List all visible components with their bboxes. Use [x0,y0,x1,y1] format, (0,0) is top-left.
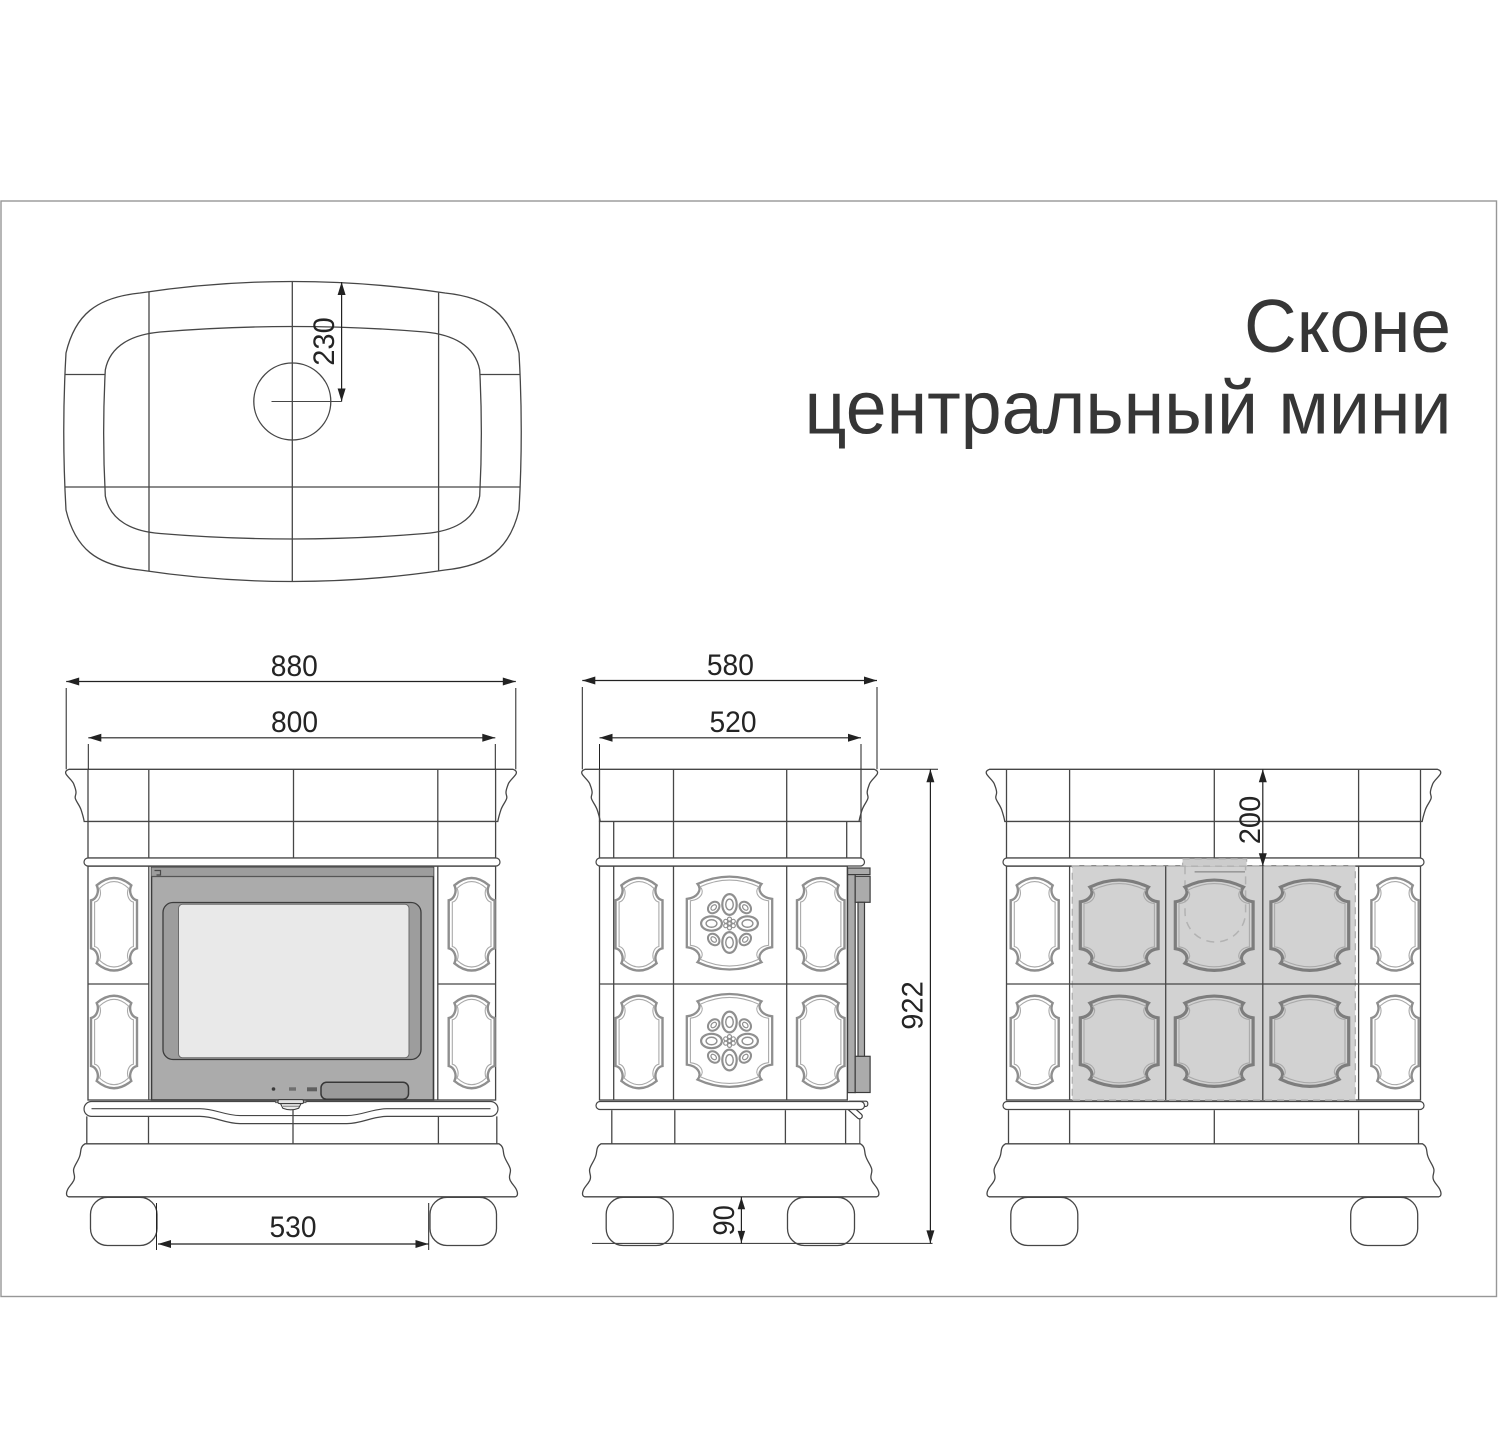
svg-text:880: 880 [271,650,318,683]
svg-text:230: 230 [308,317,341,366]
svg-text:800: 800 [271,706,318,739]
svg-text:90: 90 [708,1205,741,1236]
svg-text:580: 580 [707,649,754,682]
svg-text:530: 530 [270,1211,317,1244]
svg-text:центральный мини: центральный мини [805,366,1452,450]
svg-text:Сконе: Сконе [1244,284,1451,368]
svg-text:520: 520 [710,706,757,739]
svg-text:922: 922 [896,981,929,1030]
svg-text:200: 200 [1234,796,1267,845]
